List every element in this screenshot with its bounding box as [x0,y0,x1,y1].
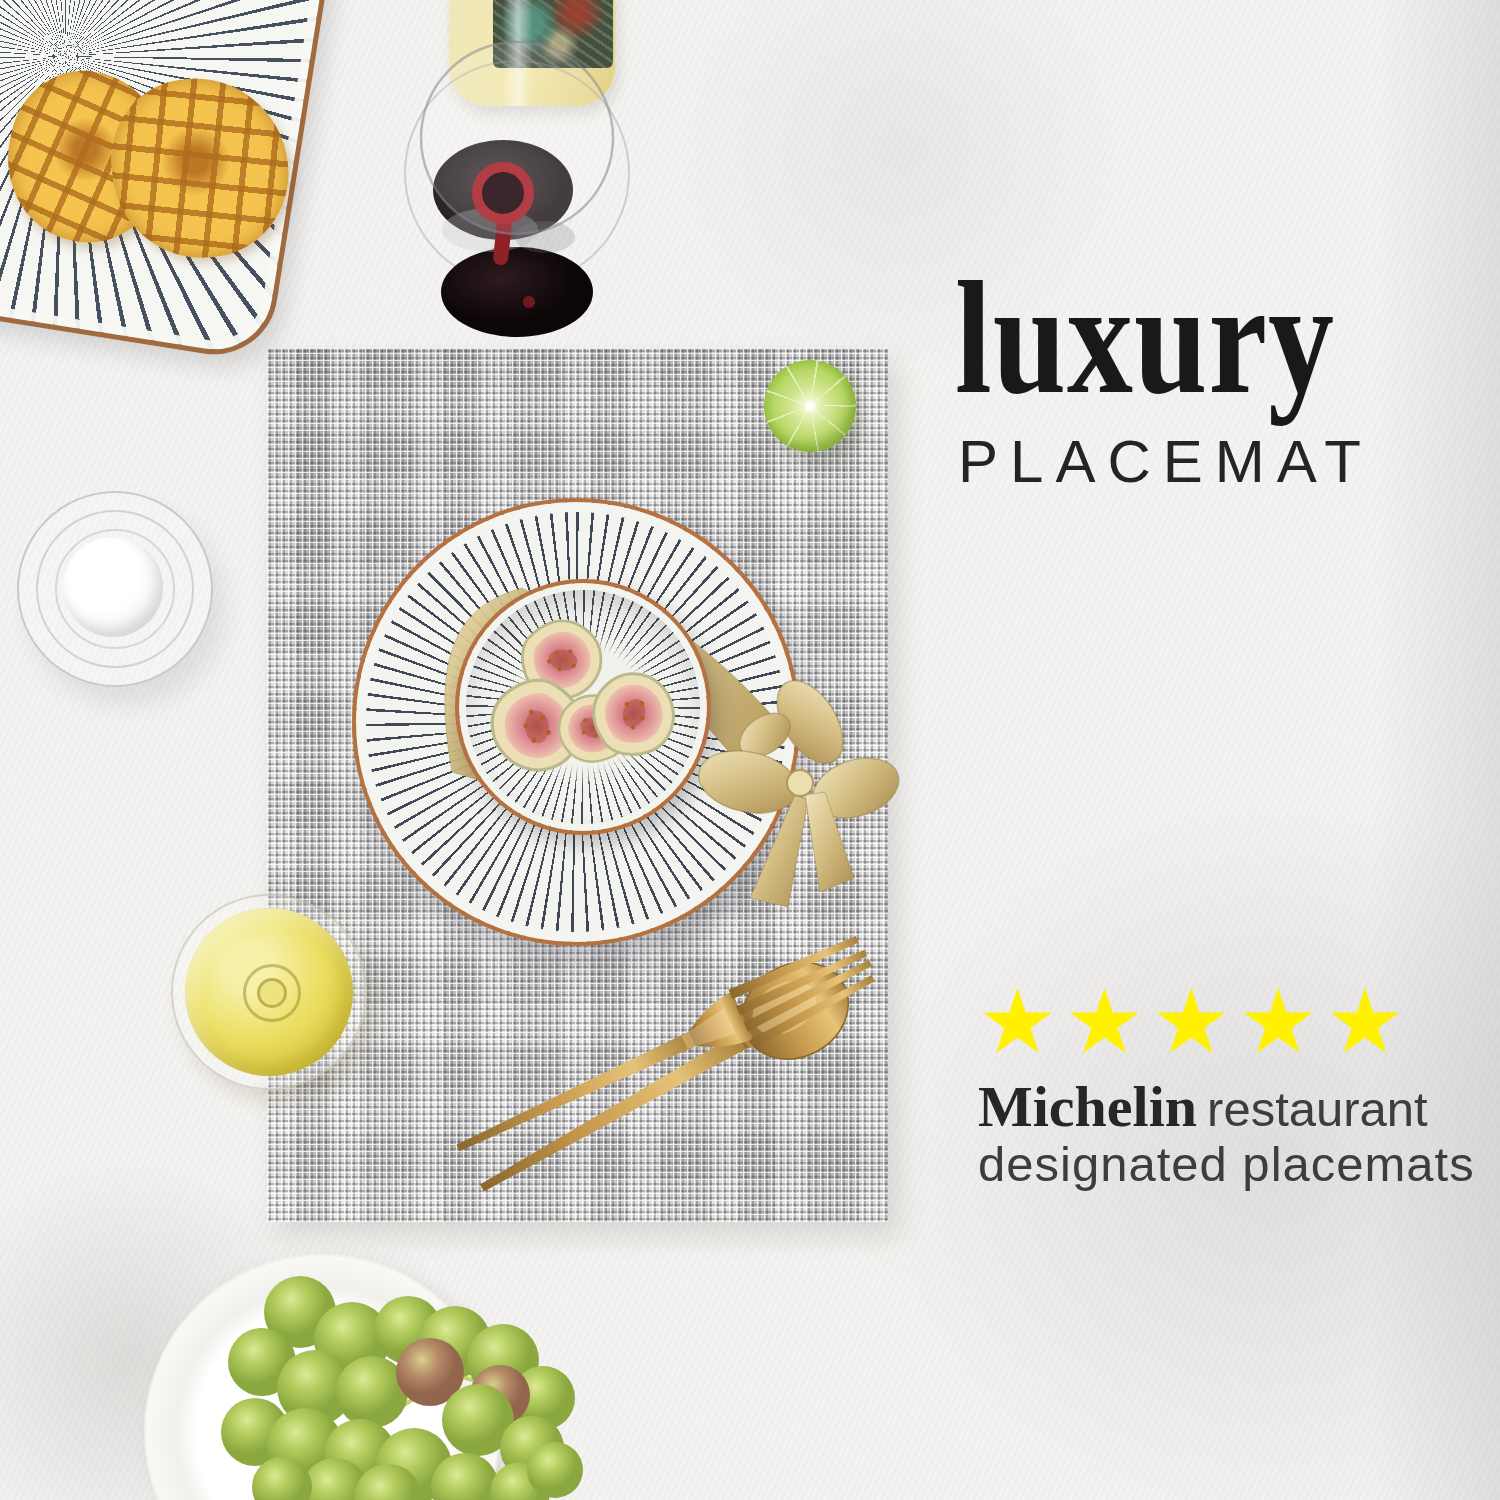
cloth-shading [1370,0,1500,1500]
glass-base [441,247,593,337]
brand-name: Michelin [978,1074,1197,1139]
caption-line2: designated placemats [978,1140,1475,1189]
grape-cluster [221,1276,583,1500]
glass-rim [421,42,613,234]
headline-title: luxury [955,258,1335,419]
product-photo: luxury PLACEMAT ★★★★★ Michelinrestaurant… [0,0,1500,1500]
rating-stars: ★★★★★ [978,978,1412,1066]
caption-line1-rest: restaurant [1207,1082,1428,1136]
water-surface [63,537,163,637]
water-glass [17,491,213,687]
lime-half [764,360,856,452]
gold-cutlery [420,900,900,1200]
fig-slices [455,580,705,830]
green-grapes [140,1260,620,1500]
caption-line1: Michelinrestaurant [978,1078,1428,1136]
headline-subtitle: PLACEMAT [958,432,1373,492]
glass-ring [257,978,287,1008]
ribbon-bow [680,660,900,920]
red-wine-glass [395,25,640,345]
white-wine-glass [171,894,367,1090]
bow-knot [787,770,813,796]
